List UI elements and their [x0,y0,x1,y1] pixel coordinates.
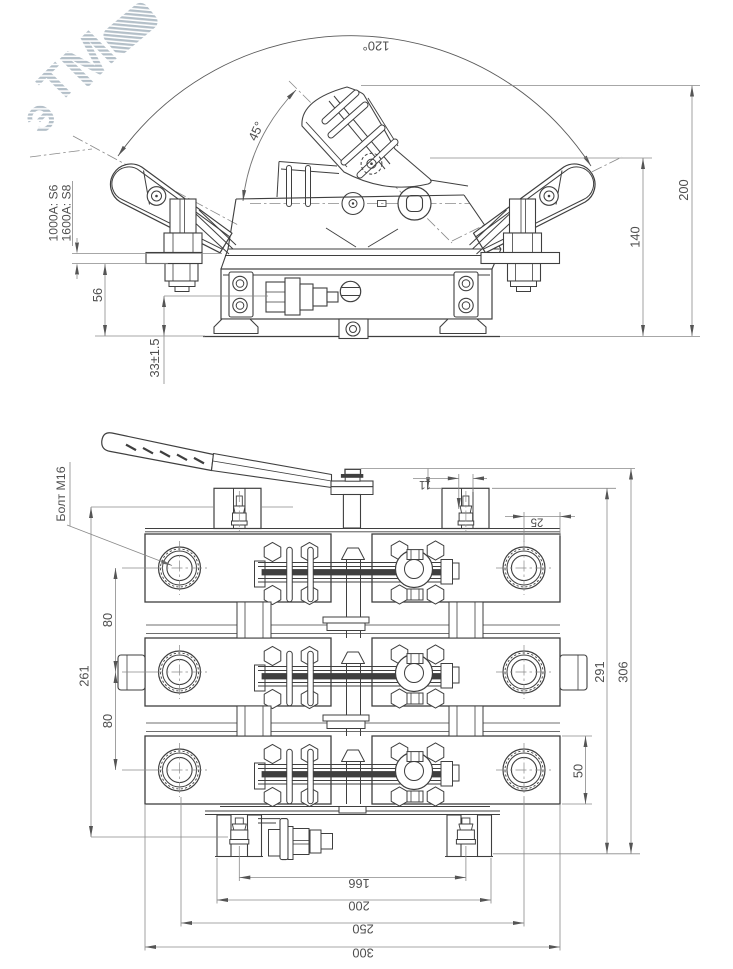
svg-text:140: 140 [628,226,643,247]
svg-text:56: 56 [90,288,105,302]
svg-text:1600A: S8: 1600A: S8 [60,184,74,241]
svg-text:200: 200 [676,179,691,200]
svg-text:80: 80 [100,613,115,627]
svg-text:306: 306 [616,661,631,682]
svg-text:11: 11 [419,478,431,490]
svg-text:120°: 120° [363,39,390,54]
svg-text:250: 250 [352,922,373,937]
svg-text:80: 80 [100,714,115,728]
svg-text:300: 300 [352,946,373,961]
svg-text:261: 261 [77,665,92,686]
svg-text:166: 166 [348,876,369,891]
svg-text:1000A: S6: 1000A: S6 [47,184,61,241]
svg-text:291: 291 [592,661,607,682]
svg-text:200: 200 [348,899,369,914]
svg-text:Болт М16: Болт М16 [54,466,68,521]
svg-text:50: 50 [571,764,586,778]
svg-text:25: 25 [531,516,544,528]
svg-text:33±1.5: 33±1.5 [147,338,162,377]
